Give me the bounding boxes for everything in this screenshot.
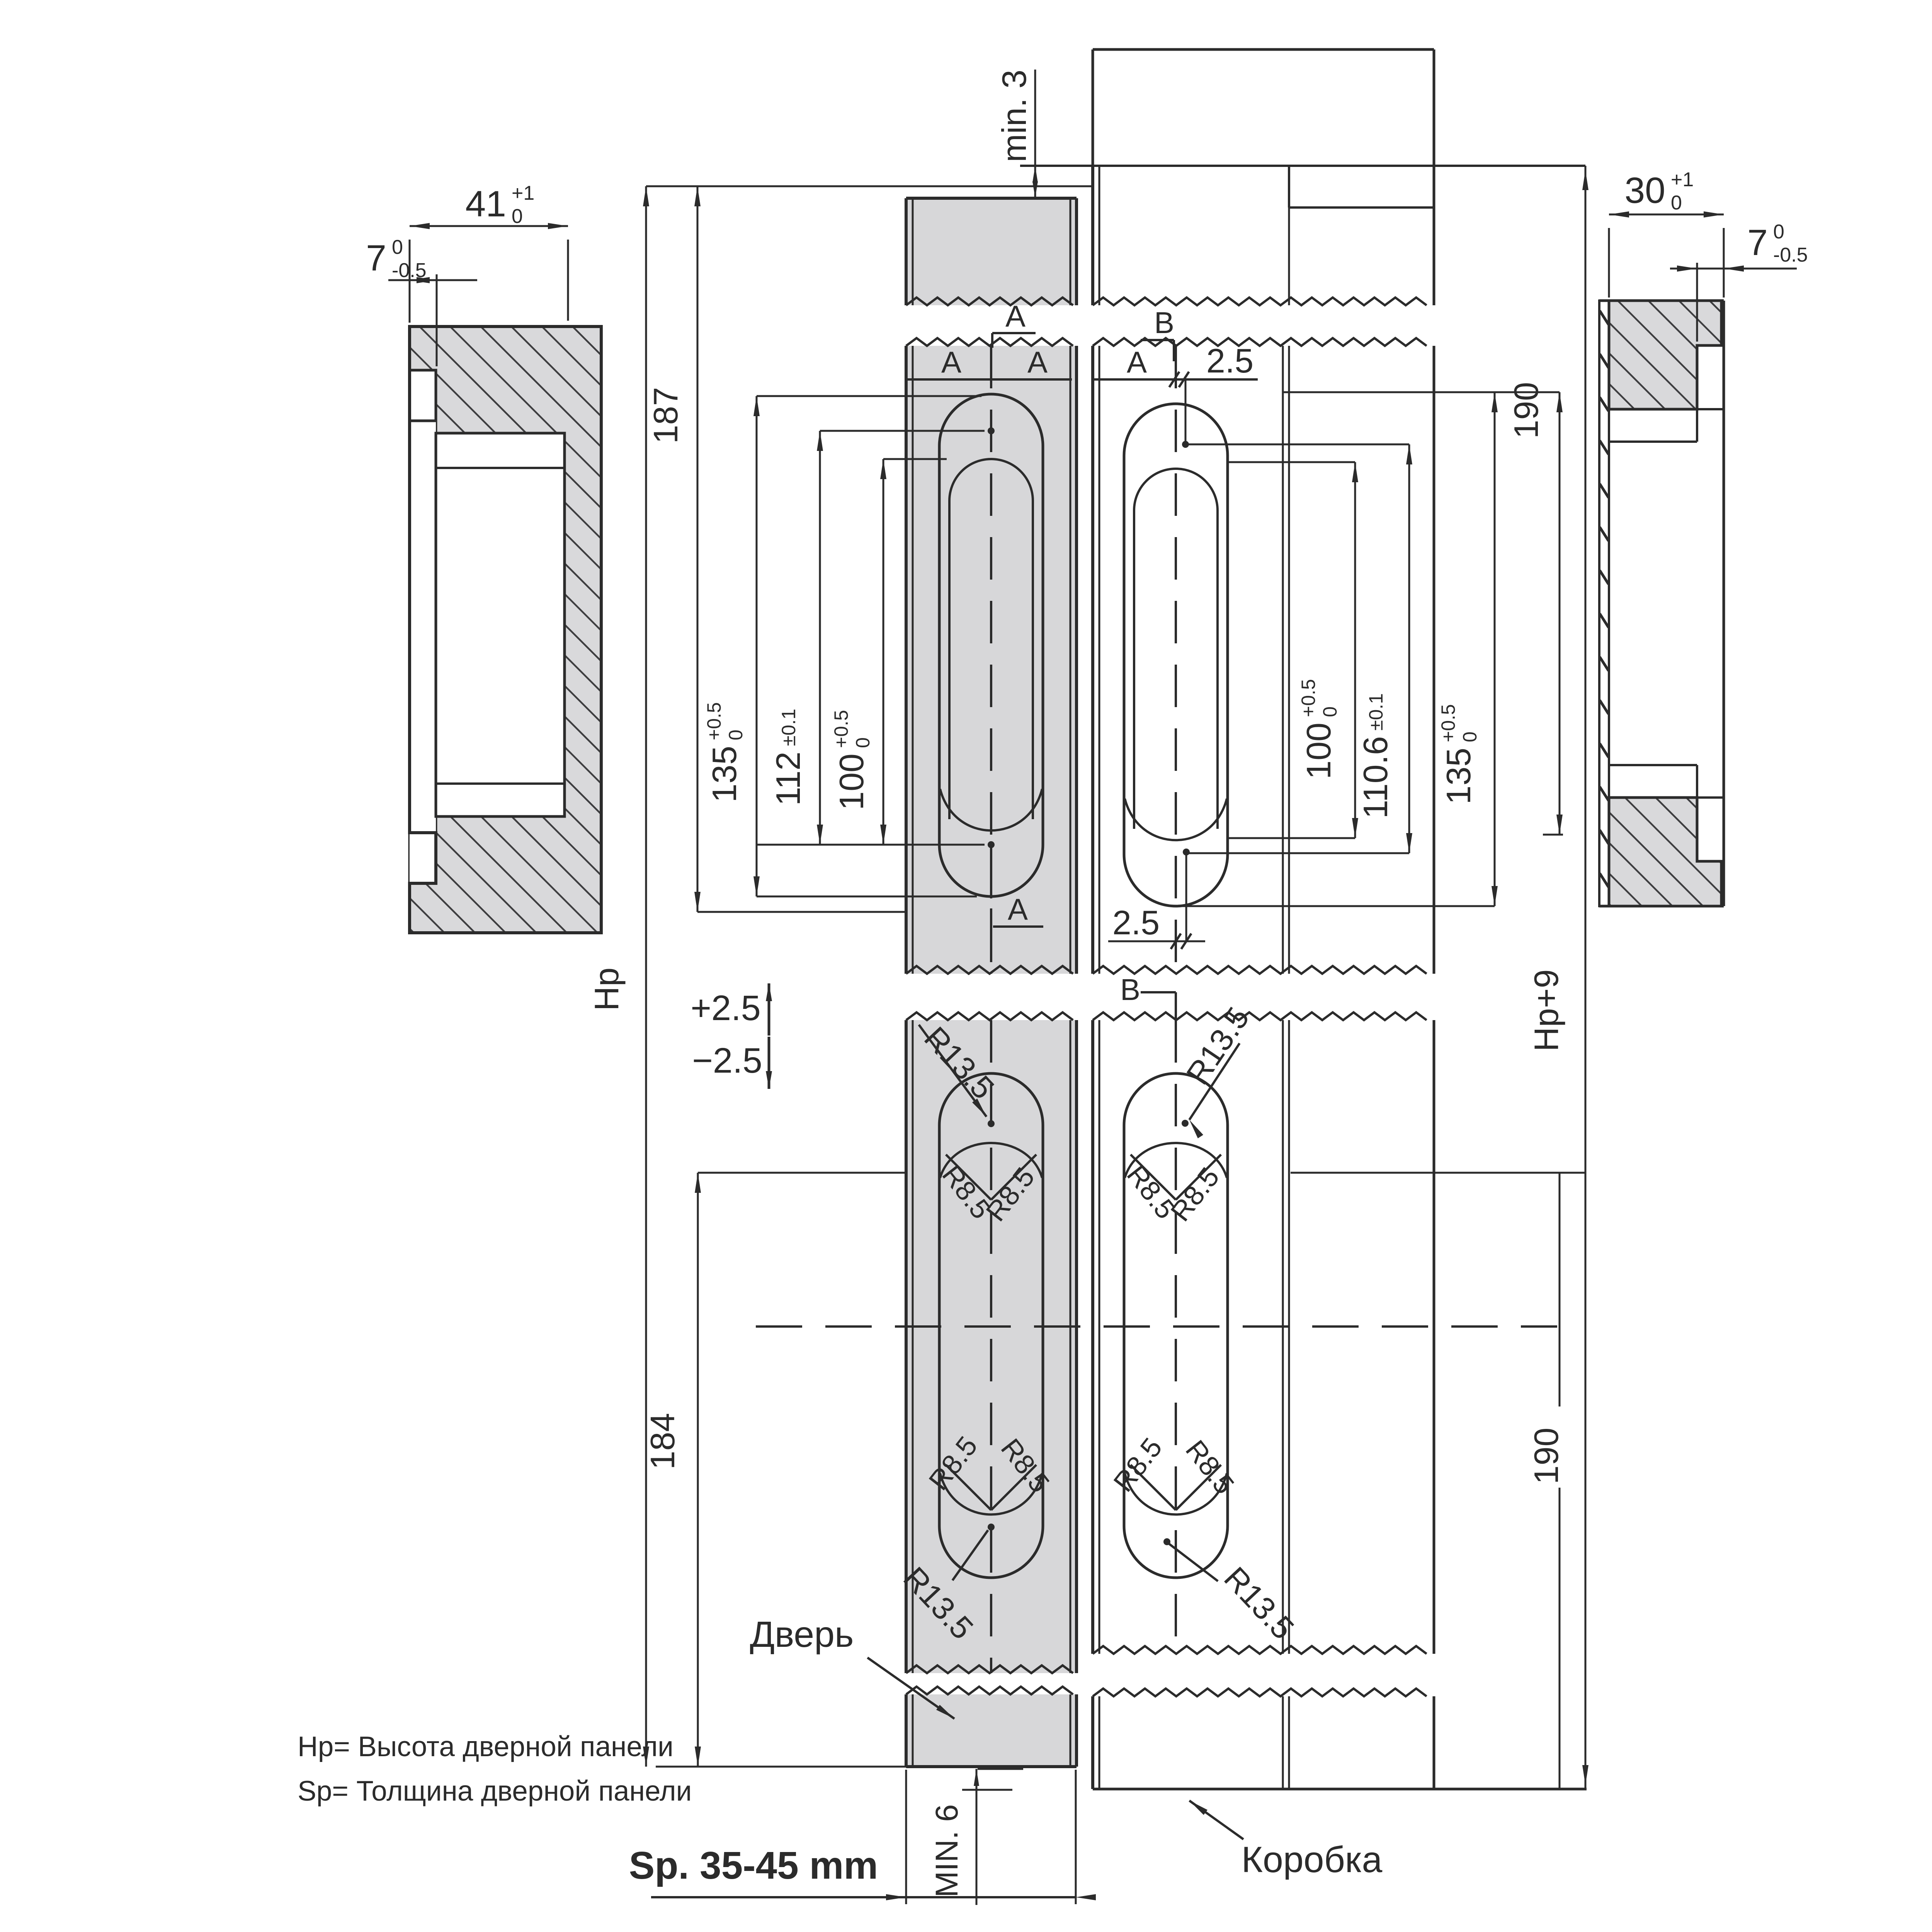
svg-text:190: 190 [1527,1428,1565,1485]
svg-text:−2.5: −2.5 [692,1041,762,1080]
svg-text:30: 30 [1624,170,1665,211]
svg-text:0: 0 [1319,706,1341,717]
svg-text:+1: +1 [1671,168,1694,191]
svg-text:A: A [1027,345,1048,379]
svg-text:+1: +1 [512,182,534,204]
svg-text:B: B [1154,306,1174,340]
svg-text:A: A [1127,345,1147,379]
svg-text:0: 0 [1773,221,1784,243]
svg-text:B: B [1120,973,1140,1007]
svg-text:41: 41 [465,184,506,224]
svg-text:2.5: 2.5 [1112,903,1160,942]
svg-text:+0.5: +0.5 [830,710,852,748]
svg-text:184: 184 [643,1413,682,1470]
svg-text:112: 112 [769,752,807,806]
svg-text:-0.5: -0.5 [1773,244,1808,266]
svg-text:135: 135 [705,746,743,803]
svg-text:Коробка: Коробка [1242,1839,1383,1880]
svg-text:2.5: 2.5 [1206,342,1253,380]
svg-text:0: 0 [1671,192,1682,214]
svg-text:±0.1: ±0.1 [1365,693,1387,731]
svg-text:187: 187 [646,387,685,444]
svg-text:Дверь: Дверь [750,1614,854,1655]
svg-text:0: 0 [725,730,747,740]
svg-text:190: 190 [1507,382,1545,439]
svg-text:0: 0 [852,737,874,748]
svg-text:A: A [1008,892,1028,926]
svg-text:110.6: 110.6 [1356,736,1395,819]
svg-text:Sp= Толщина дверной панели: Sp= Толщина дверной панели [298,1776,692,1807]
svg-text:min. 3: min. 3 [995,70,1033,162]
svg-text:Hp+9: Hp+9 [1527,969,1565,1052]
svg-text:Hp: Hp [587,968,626,1011]
svg-text:+0.5: +0.5 [703,702,725,740]
svg-text:A: A [1005,299,1026,333]
svg-text:100: 100 [832,753,871,810]
svg-text:7: 7 [366,238,386,279]
svg-text:7: 7 [1747,222,1768,263]
svg-text:Hp= Высота дверной панели: Hp= Высота дверной панели [298,1731,673,1762]
svg-text:0: 0 [392,236,403,259]
svg-text:135: 135 [1439,748,1478,804]
svg-text:+2.5: +2.5 [690,988,761,1028]
svg-text:A: A [941,345,961,379]
svg-text:Sp. 35-45 mm: Sp. 35-45 mm [629,1844,878,1887]
svg-text:+0.5: +0.5 [1298,679,1319,717]
svg-text:0: 0 [1459,731,1481,742]
svg-text:MIN. 6: MIN. 6 [929,1804,964,1897]
svg-text:0: 0 [512,205,523,228]
svg-text:+0.5: +0.5 [1437,704,1459,742]
svg-text:100: 100 [1299,723,1338,779]
svg-text:±0.1: ±0.1 [778,709,799,746]
